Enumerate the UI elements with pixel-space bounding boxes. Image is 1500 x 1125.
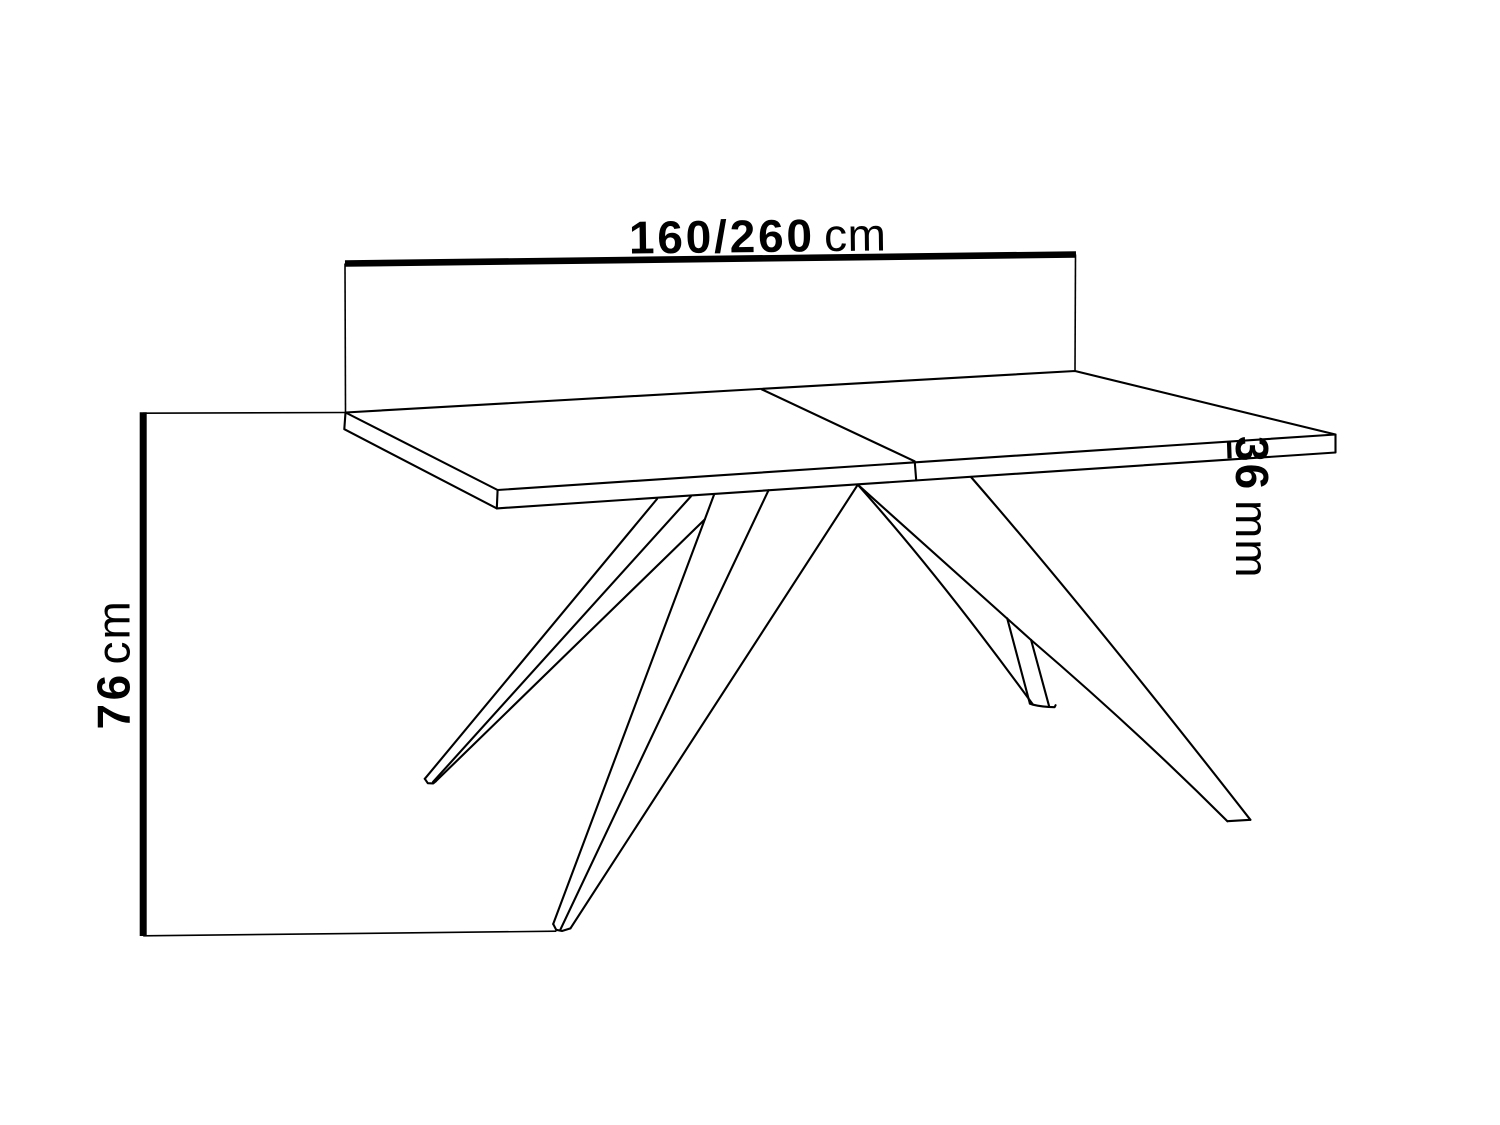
- svg-text:76 cm: 76 cm: [88, 599, 140, 729]
- svg-text:36 mm: 36 mm: [1226, 436, 1278, 579]
- svg-text:160/260 cm: 160/260 cm: [629, 208, 887, 263]
